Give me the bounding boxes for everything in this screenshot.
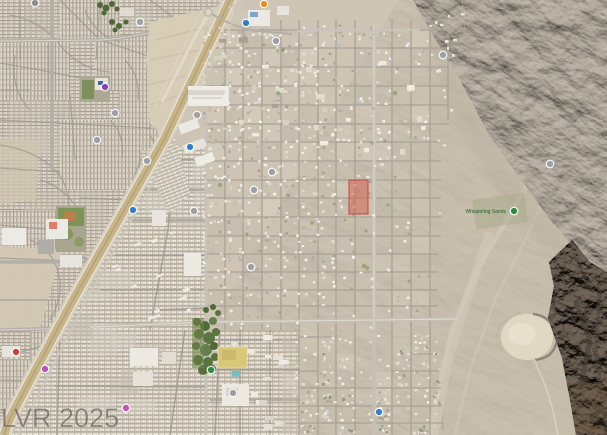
svg-text:LVR 2025: LVR 2025 [1, 403, 119, 433]
